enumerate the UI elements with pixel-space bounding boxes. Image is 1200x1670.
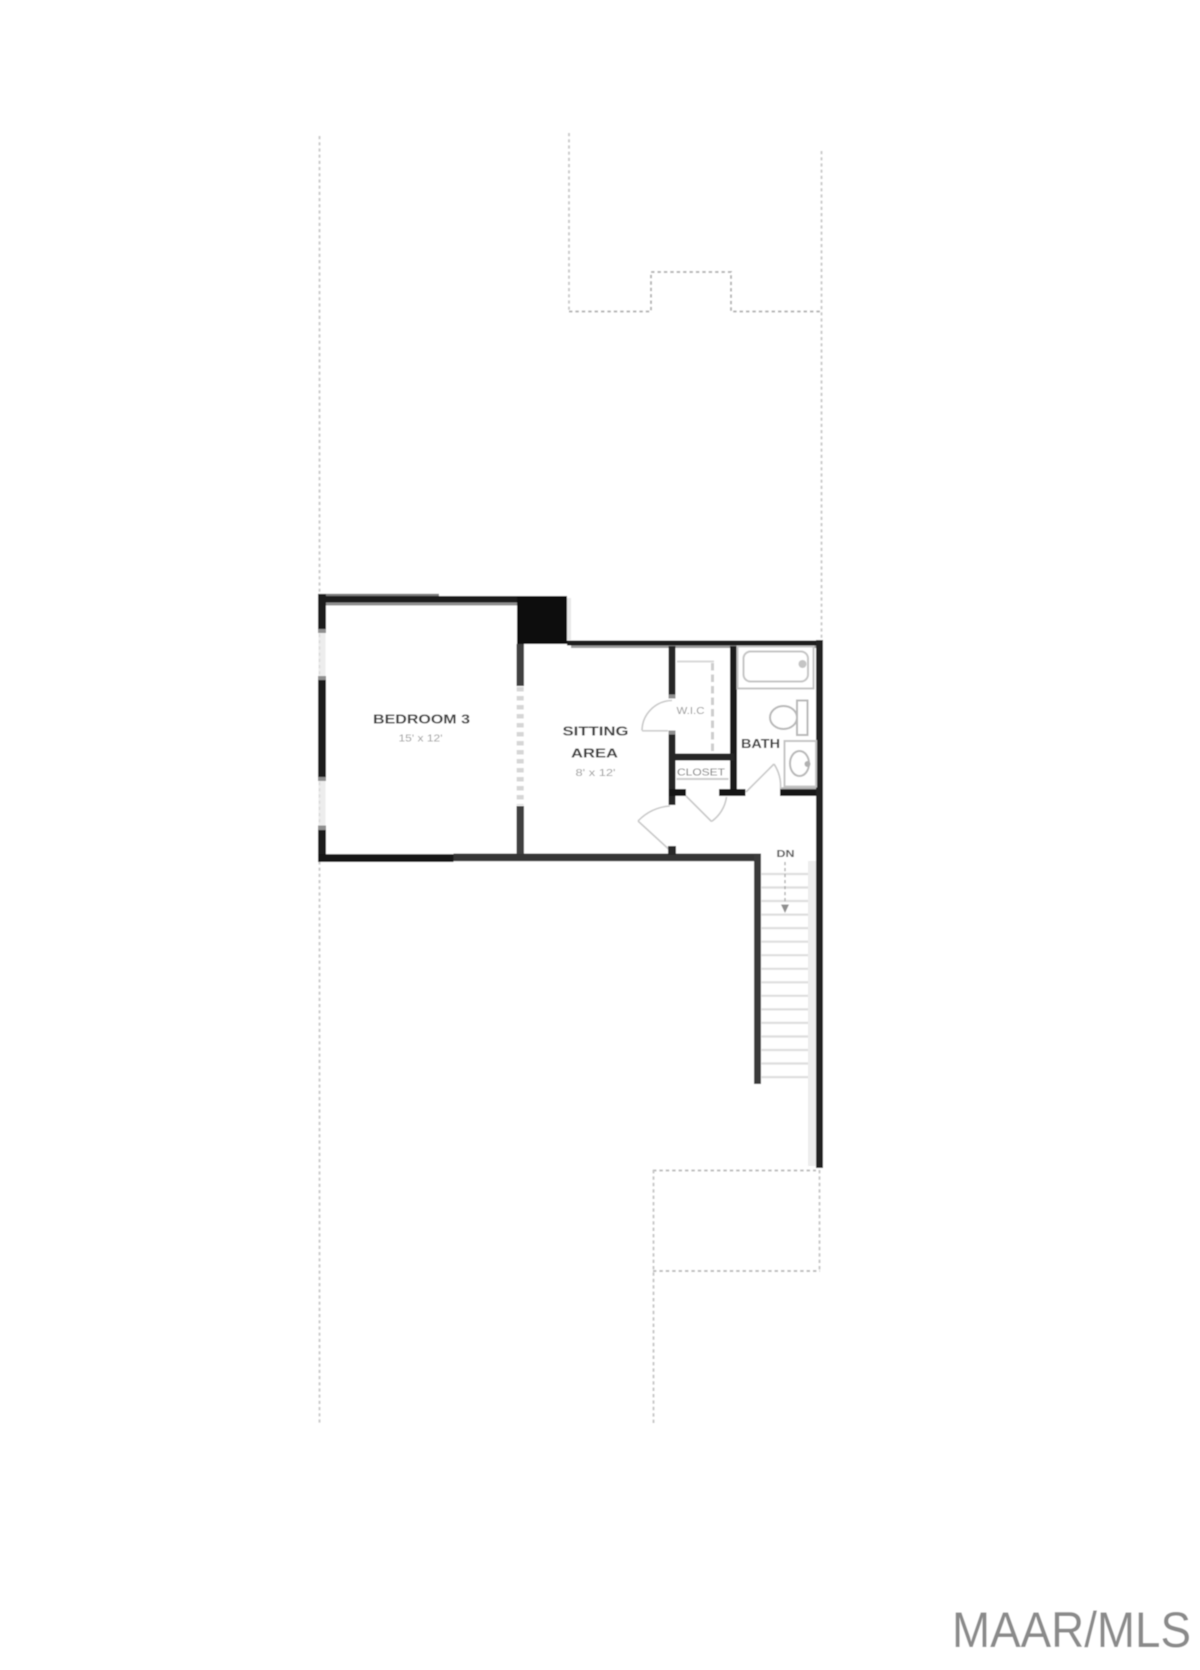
svg-text:DN: DN xyxy=(777,849,795,860)
svg-text:15' x 12': 15' x 12' xyxy=(399,734,443,745)
svg-text:8' x 12': 8' x 12' xyxy=(576,768,616,779)
svg-text:W.I.C: W.I.C xyxy=(677,706,705,717)
svg-text:CLOSET: CLOSET xyxy=(677,767,726,779)
svg-text:AREA: AREA xyxy=(571,746,619,761)
svg-text:MAAR/MLS: MAAR/MLS xyxy=(952,1602,1191,1658)
svg-text:SITTING: SITTING xyxy=(563,724,629,739)
svg-text:BATH: BATH xyxy=(741,737,780,751)
svg-text:BEDROOM 3: BEDROOM 3 xyxy=(373,712,470,727)
